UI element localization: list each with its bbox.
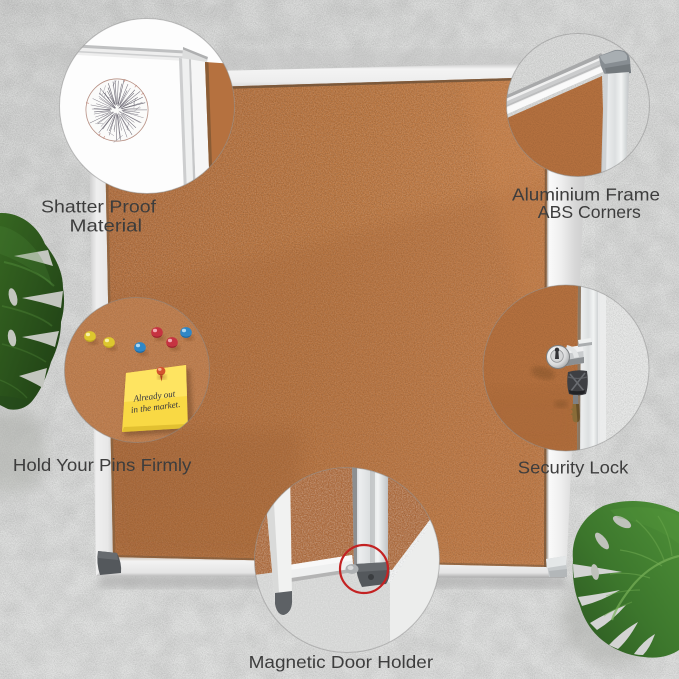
svg-text:Hold Your Pins Firmly: Hold Your Pins Firmly [13, 455, 192, 475]
svg-text:Security Lock: Security Lock [518, 458, 629, 478]
svg-text:Shatter Proof: Shatter Proof [41, 196, 156, 216]
svg-text:ABS Corners: ABS Corners [538, 202, 641, 222]
svg-text:Magnetic Door Holder: Magnetic Door Holder [249, 652, 434, 672]
svg-text:Material: Material [70, 215, 143, 235]
